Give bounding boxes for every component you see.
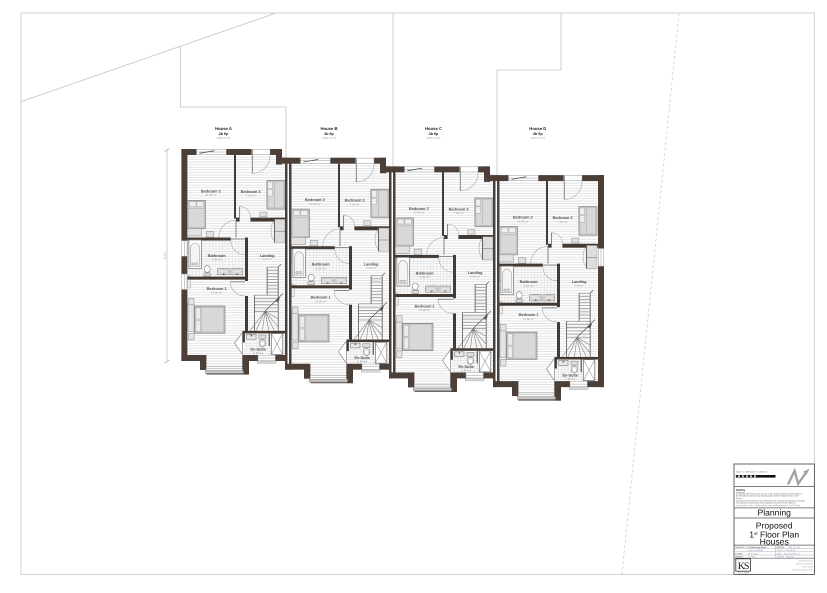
svg-text:5.46 m²: 5.46 m² [366, 266, 376, 270]
svg-text:4.94 m²: 4.94 m² [212, 258, 222, 262]
svg-text:10.36 m²: 10.36 m² [413, 211, 424, 215]
svg-text:Mr P Staley: Mr P Staley [748, 552, 758, 555]
svg-text:(105.3 m²): (105.3 m²) [427, 136, 441, 140]
svg-text:10.36 m²: 10.36 m² [517, 219, 528, 223]
svg-text:be checked on site and an: be checked on site and any discrepancies… [736, 495, 799, 498]
svg-text:(105.3 m²): (105.3 m²) [217, 136, 231, 140]
svg-text:4.94 m²: 4.94 m² [524, 284, 534, 288]
svg-text:12.88 m²: 12.88 m² [523, 317, 534, 321]
svg-text:KS: KS [738, 561, 749, 572]
svg-text:2105 - P - 05: 2105 - P - 05 [788, 546, 800, 549]
svg-text:CLIENT :: CLIENT : [735, 552, 744, 555]
svg-text:4.94 m²: 4.94 m² [316, 266, 326, 270]
svg-text:3.48 m²: 3.48 m² [357, 360, 367, 364]
svg-text:PROJECT : 17 Marlborough Roa: PROJECT : 17 Marlborough Road [735, 546, 765, 549]
svg-text:3.48 m²: 3.48 m² [565, 377, 575, 381]
svg-text:House C: House C [425, 126, 442, 131]
svg-text:www.ks-design.co.uk: www.ks-design.co.uk [792, 568, 813, 571]
svg-text:K Staley: K Staley [748, 556, 755, 559]
svg-text:7.86 m²: 7.86 m² [246, 194, 256, 198]
svg-text:House D: House D [529, 126, 546, 131]
svg-text:10.36 m²: 10.36 m² [205, 193, 216, 197]
svg-text:Sutton in Ashfield: Sutton in Ashfield [796, 562, 814, 565]
svg-text:5.46 m²: 5.46 m² [262, 257, 272, 261]
svg-text:5.46 m²: 5.46 m² [574, 283, 584, 287]
svg-text:NG17 8AD: NG17 8AD [802, 565, 813, 568]
svg-text:House B: House B [321, 126, 338, 131]
svg-text:5.46 m²: 5.46 m² [470, 275, 480, 279]
svg-text:House A: House A [215, 126, 232, 131]
svg-text:3.48 m²: 3.48 m² [461, 368, 471, 372]
svg-text:d e s i g n: d e s i g n [737, 572, 749, 575]
svg-text:7.86 m²: 7.86 m² [558, 220, 568, 224]
svg-text:Sutton-in-Ashfield: Sutton-in-Ashfield [747, 549, 763, 552]
svg-text:11.7m: 11.7m [163, 252, 166, 259]
svg-text:NOTES: NOTES [736, 489, 745, 492]
svg-text:DATE : July 2021 REV : A: DATE : July 2021 REV : A [777, 552, 801, 555]
svg-text:7.86 m²: 7.86 m² [454, 211, 464, 215]
svg-text:4.94 m²: 4.94 m² [420, 275, 430, 279]
svg-text:Planning: Planning [757, 508, 791, 518]
svg-text:7.86 m²: 7.86 m² [350, 202, 360, 206]
svg-text:DRAWN :: DRAWN : [735, 556, 744, 559]
svg-text:12.88 m²: 12.88 m² [419, 308, 430, 312]
svg-text:12.88 m²: 12.88 m² [211, 291, 222, 295]
svg-text:3.48 m²: 3.48 m² [253, 351, 263, 355]
svg-text:(105.3 m²): (105.3 m²) [531, 136, 545, 140]
svg-text:STATUS : Planning: STATUS : Planning [777, 556, 794, 559]
svg-text:DRG No :: DRG No : [777, 546, 786, 549]
svg-text:scale : 1 : 100 @ A3 /: scale : 1 : 100 @ A3 / 1 : 50 @ A1 [736, 471, 768, 474]
svg-text:12.88 m²: 12.88 m² [315, 299, 326, 303]
svg-text:SCALE : 1:100 @ A3: SCALE : 1:100 @ A3 [777, 549, 797, 552]
svg-text:4 Brook Street: 4 Brook Street [799, 559, 813, 562]
svg-text:Houses: Houses [760, 537, 789, 547]
svg-text:10.36 m²: 10.36 m² [309, 202, 320, 206]
svg-text:(105.3 m²): (105.3 m²) [322, 136, 336, 140]
